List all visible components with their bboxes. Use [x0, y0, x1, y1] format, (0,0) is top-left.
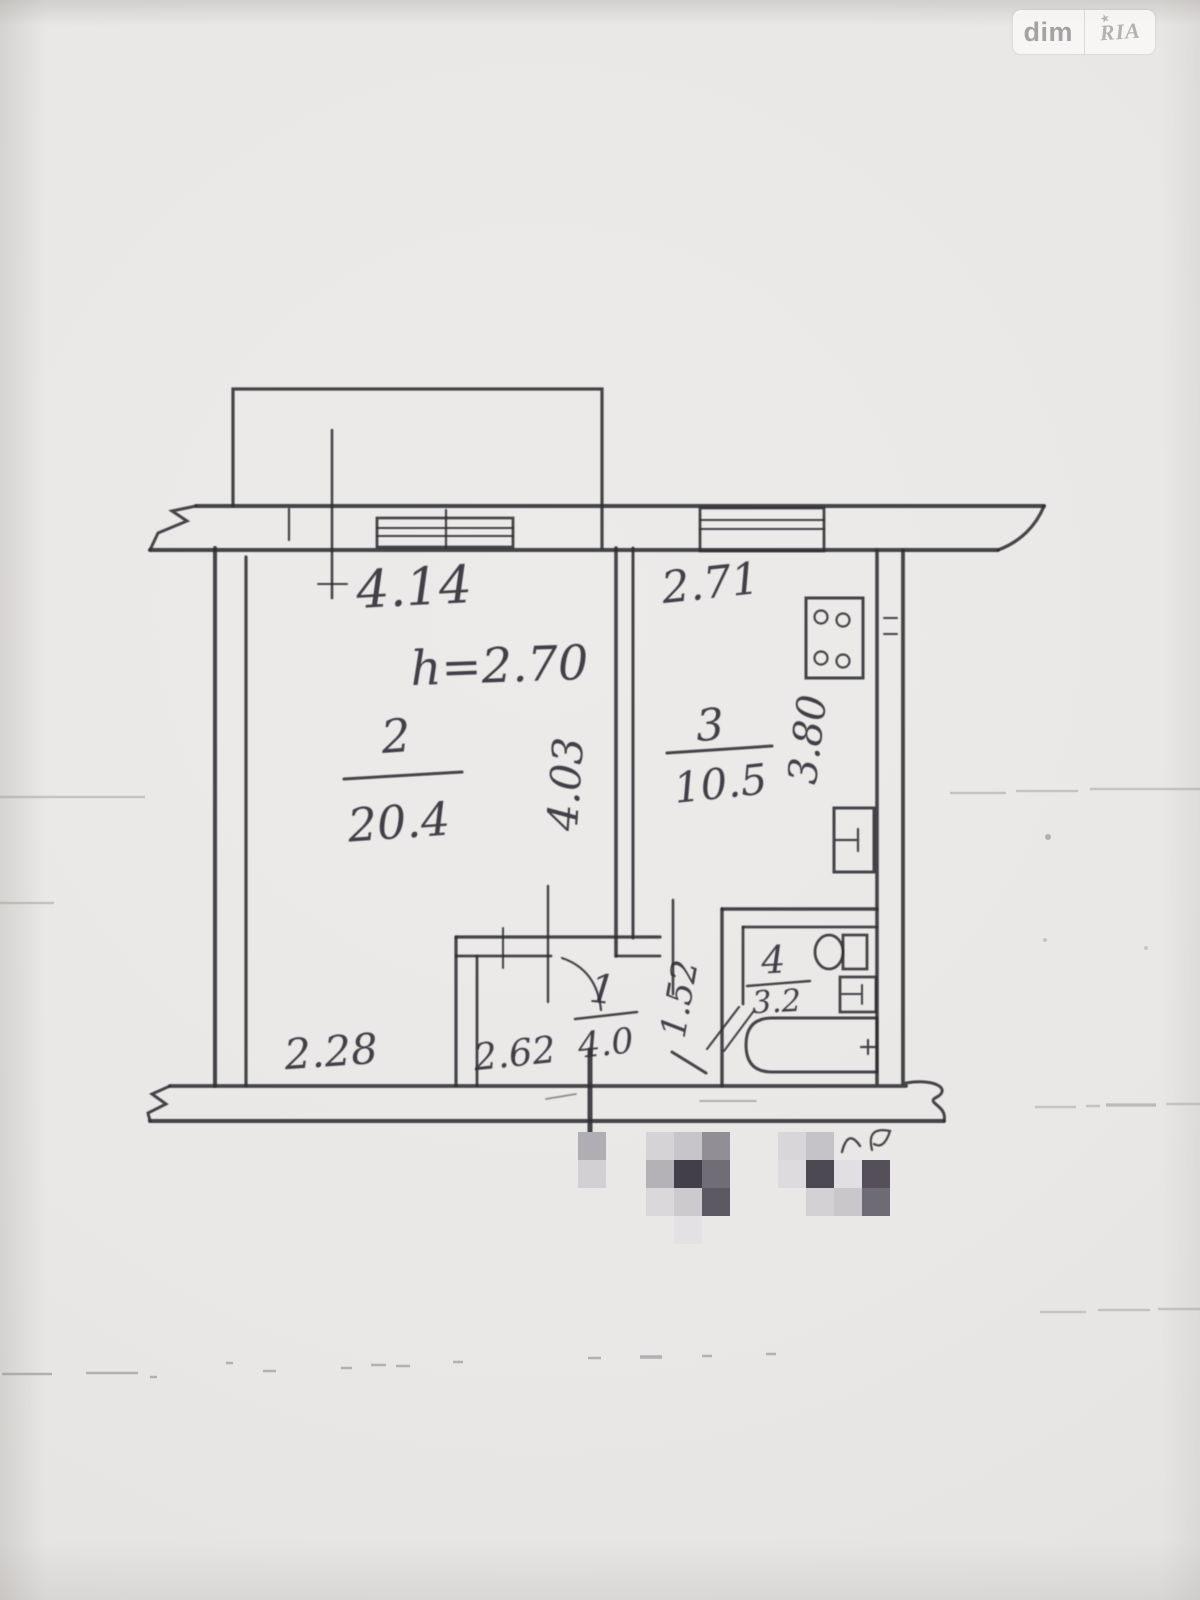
window-symbol-kitchen: [700, 508, 824, 551]
toilet-tank: [843, 935, 867, 969]
wall-bottom-break-left: [148, 1086, 170, 1121]
scan-artifact: [950, 789, 1200, 793]
stove-burner-3: [815, 652, 828, 665]
toilet-symbol: [815, 935, 867, 969]
scan-speck: [1045, 834, 1051, 840]
labels-group: 4.14 2.71 h=2.70 2 20.4 4.03 3 10.5 3.80…: [282, 553, 837, 1079]
toilet-bowl: [815, 935, 843, 969]
scan-speck: [1144, 946, 1148, 950]
kitchen-room-number: 3: [694, 699, 725, 752]
bathtub-outline: [746, 1018, 877, 1072]
stove-burner-1: [815, 611, 828, 624]
dimria-watermark: dim ★ RIA: [1013, 10, 1155, 54]
dim-living-width: 4.14: [354, 555, 474, 621]
stove-outline: [806, 598, 863, 678]
scan-artifact: [588, 1354, 776, 1358]
dim-kitchen-depth: 3.80: [780, 692, 837, 786]
kitchen-sink-symbol: [834, 808, 874, 872]
bathtub-faucet: [861, 1040, 876, 1054]
hall-room-area: 4.0: [575, 1021, 636, 1067]
hall-room-number: 1: [587, 966, 617, 1014]
living-room-area: 20.4: [345, 792, 452, 853]
scanned-floorplan-page: 4.14 2.71 h=2.70 2 20.4 4.03 3 10.5 3.80…: [0, 0, 1200, 1600]
living-room-number: 2: [378, 708, 412, 764]
dim-kitchen-width: 2.71: [658, 553, 762, 614]
handwriting-squiggle-a: [842, 1138, 860, 1152]
scan-artifact-dash-row: [2, 1354, 776, 1377]
stove-burner-4: [837, 655, 850, 668]
wall-top-taper-right: [998, 506, 1044, 550]
pencil-mark-a: [546, 1094, 576, 1099]
bath-room-area: 3.2: [751, 983, 802, 1022]
stove-symbol: [806, 598, 863, 678]
watermark-dim-text: dim: [1013, 10, 1084, 54]
wall-bottom-break-right: [906, 1082, 944, 1121]
scan-artifact: [1040, 1309, 1200, 1312]
dim-living-depth: 4.03: [538, 736, 593, 834]
bath-room-number: 4: [759, 937, 786, 982]
bath-sink-faucet: [842, 985, 862, 1004]
dim-living-bottom: 2.28: [282, 1024, 380, 1079]
stove-burner-2: [837, 614, 850, 627]
kitchen-sink-faucet: [836, 829, 858, 851]
watermark-ria: ★ RIA: [1083, 8, 1156, 57]
floorplan-drawing: 4.14 2.71 h=2.70 2 20.4 4.03 3 10.5 3.80…: [0, 0, 1200, 1600]
dim-hall-width: 2.62: [470, 1028, 557, 1079]
handwriting-squiggle-b: [871, 1130, 890, 1150]
ceiling-height-note: h=2.70: [410, 635, 590, 697]
bath-sink-symbol: [840, 977, 876, 1012]
dim-hall-depth: 1.52: [654, 957, 707, 1041]
kitchen-room-area: 10.5: [671, 754, 769, 813]
bathtub-symbol: [746, 1018, 877, 1072]
wall-top-break-left: [150, 506, 196, 550]
entrance-door-leaf: [672, 1052, 706, 1073]
scan-speck: [1043, 938, 1047, 942]
living-label-underline: [344, 772, 462, 779]
scan-artifacts-group: [0, 789, 1200, 1377]
scan-artifact: [2, 1362, 463, 1377]
